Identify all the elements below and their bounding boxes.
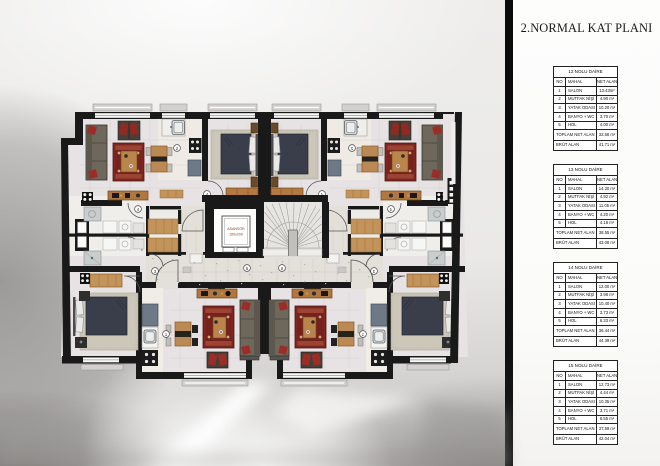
svg-text:100x200: 100x200 <box>229 233 243 237</box>
svg-text:ASANSÖR: ASANSÖR <box>227 227 245 231</box>
